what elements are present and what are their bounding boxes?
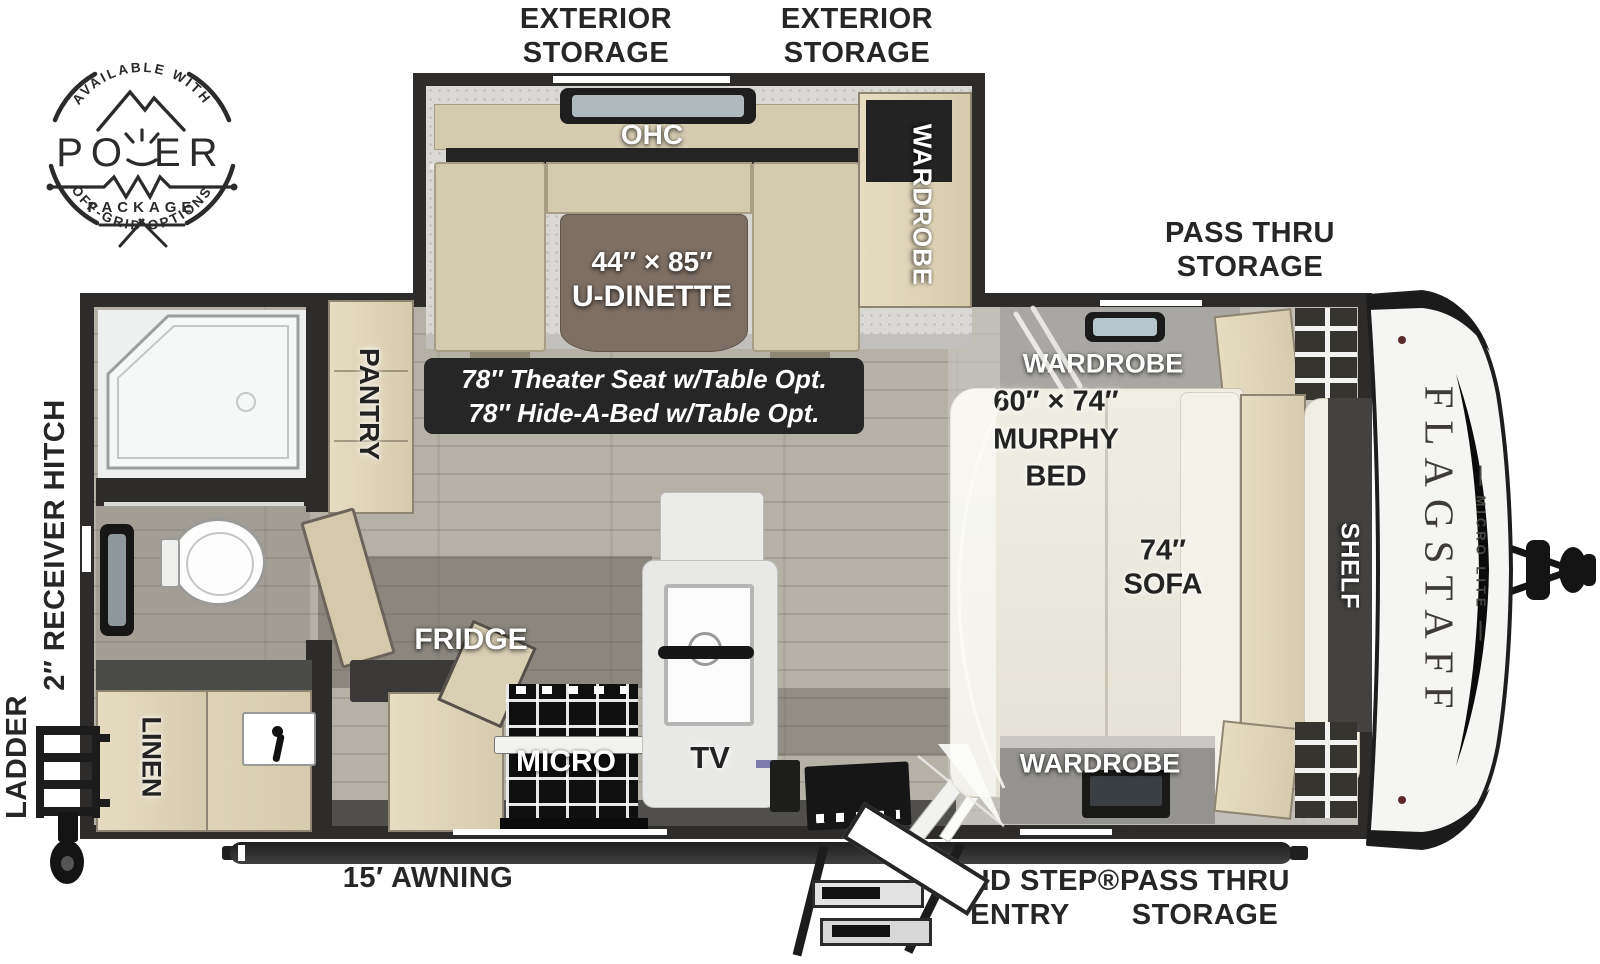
tv-handle — [658, 646, 754, 659]
label-linen: LINEN — [136, 717, 167, 798]
step-tread-grip-2 — [832, 925, 890, 937]
step-tread-grip-1 — [822, 887, 880, 899]
awning-roll — [230, 842, 1292, 864]
tablet-screen — [1090, 776, 1162, 806]
brand-series: MICRO LITE — [1474, 465, 1489, 640]
range-knobs — [516, 686, 628, 694]
sofa-arm — [950, 388, 996, 796]
front-wardrobe-bottom-edge — [1000, 736, 1215, 748]
toilet-seat-ring — [186, 532, 254, 596]
counter-item-dark — [770, 760, 800, 812]
ladder-hook — [96, 799, 110, 807]
corner-cabinet-bottom — [1213, 720, 1300, 820]
dinette-bench-right — [752, 162, 860, 352]
label-pass-thru-storage-bottom: PASS THRU STORAGE — [1120, 864, 1290, 932]
label-dinette-size: 44″ × 85″ — [591, 246, 712, 278]
mountains-icon — [98, 92, 184, 130]
slideout-window-slit — [553, 76, 730, 83]
label-wardrobe-top: WARDROBE — [1023, 349, 1184, 380]
label-ohc: OHC — [621, 119, 683, 151]
bath-window-glass — [108, 534, 126, 626]
brand-mark: MICRO LITE FLAGSTAFF — [1416, 386, 1489, 721]
tongue-jack-bracket — [58, 812, 78, 842]
badge-title-left: PO — [56, 131, 130, 175]
sun-smile-icon — [128, 160, 156, 165]
roof-vent-glass — [1093, 318, 1157, 336]
brand-name: FLAGSTAFF — [1416, 386, 1464, 721]
label-sofa: SOFA — [1124, 569, 1203, 602]
label-pantry: PANTRY — [353, 348, 385, 460]
badge-subtitle: PACKAGE — [88, 199, 197, 216]
dinette-bench-back — [546, 162, 752, 214]
marker-light-icon — [1398, 336, 1406, 344]
badge-arc-top: AVAILABLE WITH — [69, 60, 214, 108]
awning-bracket-right — [1290, 846, 1308, 860]
wall-window-slit — [1020, 829, 1112, 835]
svg-text:AVAILABLE WITH: AVAILABLE WITH — [69, 60, 214, 108]
shower-track — [104, 502, 304, 506]
marker-light-icon — [1398, 796, 1406, 804]
label-murphy: MURPHY — [993, 424, 1119, 457]
label-murphy-size: 60″ × 74″ — [993, 386, 1118, 419]
label-dinette: U-DINETTE — [572, 280, 732, 314]
wall-window-slit — [82, 526, 91, 572]
badge-title-right: ER — [154, 131, 226, 175]
label-ladder: LADDER — [0, 695, 34, 819]
slideout-window-glass — [572, 95, 744, 117]
ladder-hook — [96, 734, 110, 742]
label-receiver-hitch: 2″ RECEIVER HITCH — [38, 399, 72, 691]
wall-window-slit — [453, 829, 667, 835]
vanity-backsplash — [96, 660, 312, 692]
label-exterior-storage-left: EXTERIOR STORAGE — [520, 2, 672, 70]
label-fridge: FRIDGE — [414, 623, 527, 657]
label-awning: 15′ AWNING — [343, 861, 513, 895]
label-murphy-bed: BED — [1025, 461, 1086, 494]
options-note: 78″ Theater Seat w/Table Opt. 78″ Hide-A… — [424, 358, 864, 434]
wall-window-slit — [1100, 300, 1202, 306]
awning-roll-gap — [238, 845, 245, 861]
label-wardrobe-bottom: WARDROBE — [1020, 749, 1181, 780]
toilet-tank — [160, 538, 180, 588]
label-micro: MICRO — [516, 745, 616, 779]
jack-wheel-hub — [61, 856, 74, 871]
dinette-bench-left — [434, 162, 546, 352]
power-package-badge-icon: AVAILABLE WITH OFF-GRID OPTIONS PO ER PA… — [40, 46, 244, 250]
counter-wall-shade — [766, 688, 956, 756]
shower-outline-icon — [98, 310, 310, 480]
label-sofa-size: 74″ — [1140, 535, 1186, 568]
label-exterior-storage-right: EXTERIOR STORAGE — [781, 2, 933, 70]
label-pass-thru-storage-top: PASS THRU STORAGE — [1165, 216, 1335, 284]
ladder-icon — [36, 726, 100, 818]
tongue-jack-icon — [1526, 540, 1550, 600]
label-slideout-wardrobe: WARDROBE — [907, 124, 938, 287]
label-tv: TV — [690, 740, 730, 776]
rv-floorplan: AVAILABLE WITH OFF-GRID OPTIONS PO ER PA… — [0, 0, 1600, 964]
